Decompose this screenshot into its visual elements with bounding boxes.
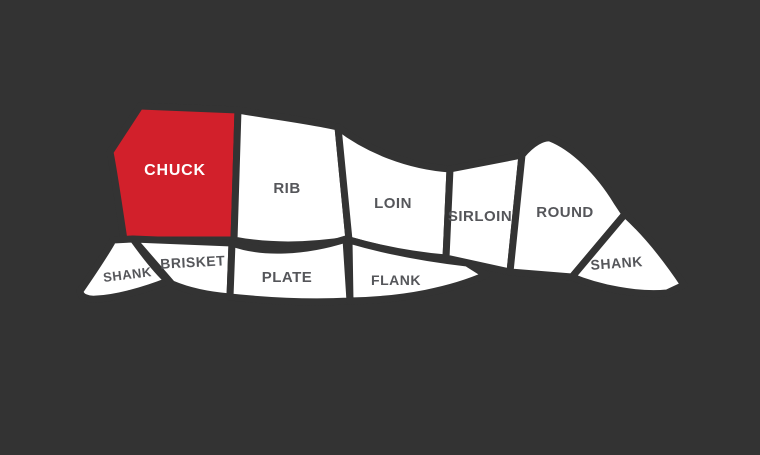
- beef-cuts-svg: CHUCK RIB LOIN SIRLOIN ROUND SHANK: [0, 0, 760, 455]
- beef-cuts-diagram: CHUCK RIB LOIN SIRLOIN ROUND SHANK: [0, 0, 760, 455]
- cut-chuck[interactable]: CHUCK: [110, 106, 238, 240]
- cut-rib[interactable]: RIB: [234, 110, 349, 245]
- cut-chuck-shape[interactable]: [110, 106, 238, 240]
- cut-plate[interactable]: PLATE: [230, 239, 350, 302]
- cut-rib-shape[interactable]: [234, 110, 349, 245]
- cut-plate-shape[interactable]: [230, 239, 350, 302]
